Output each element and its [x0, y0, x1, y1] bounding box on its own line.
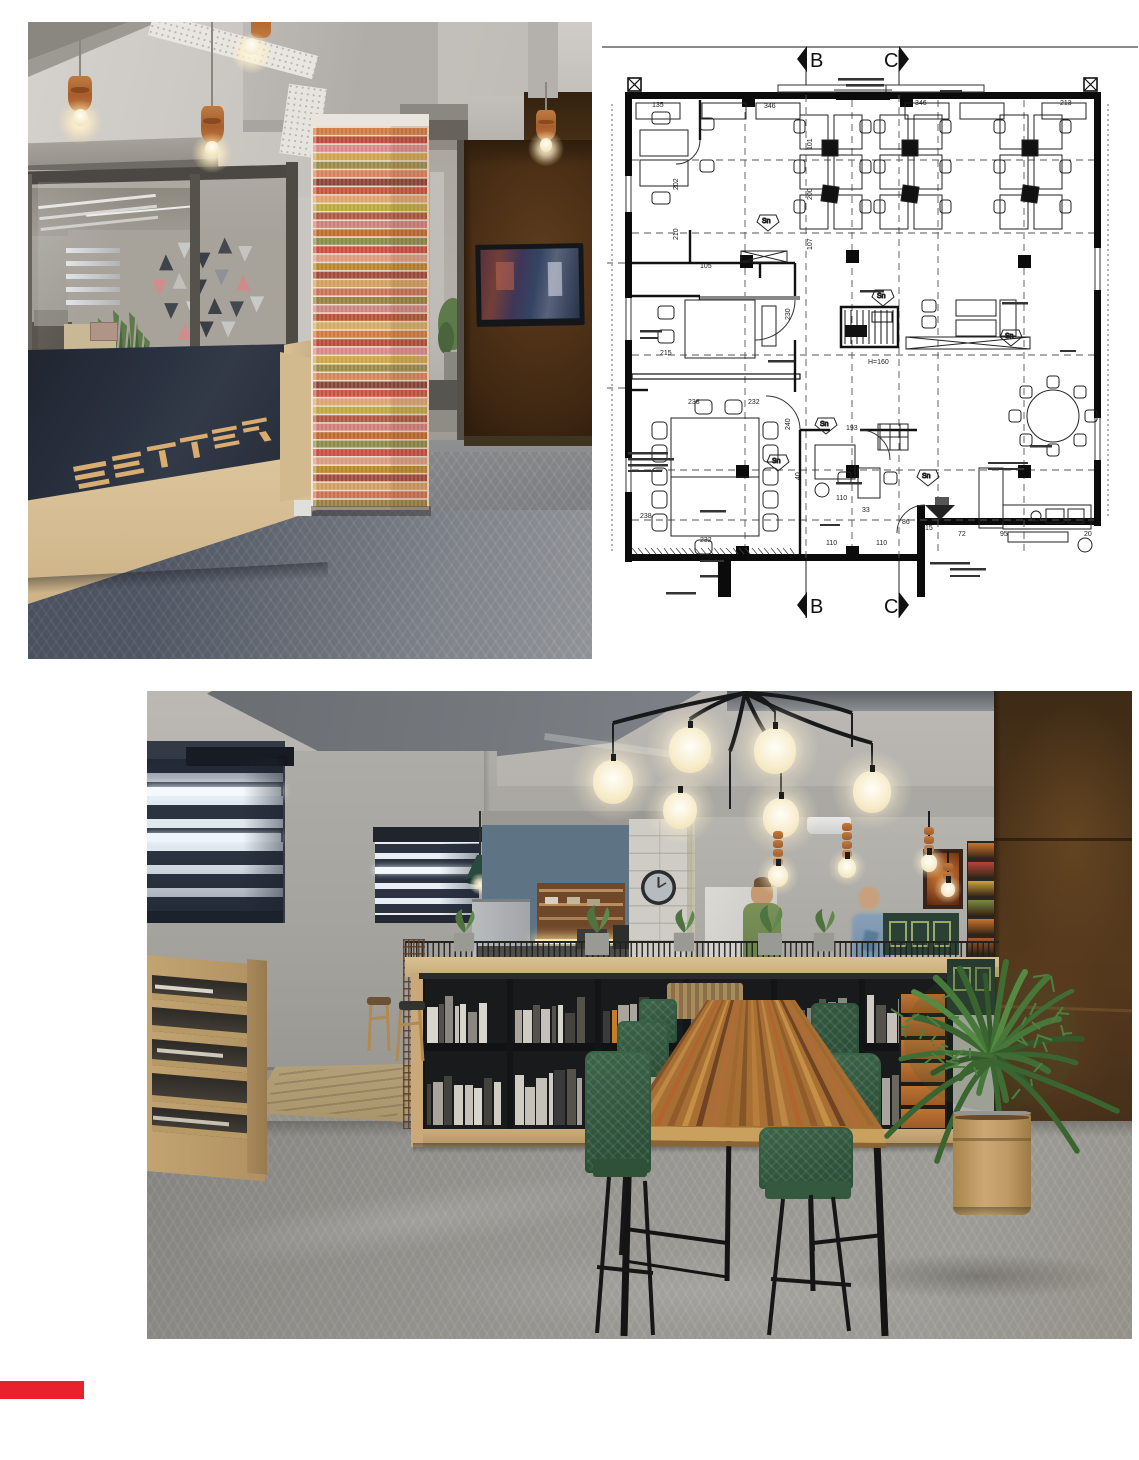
svg-text:C: C: [884, 50, 898, 72]
svg-text:238: 238: [688, 399, 700, 406]
svg-text:346: 346: [764, 103, 776, 110]
svg-text:95: 95: [1000, 531, 1008, 538]
svg-text:33: 33: [862, 507, 870, 514]
svg-text:Sn: Sn: [877, 293, 886, 300]
svg-text:72: 72: [958, 531, 966, 538]
svg-text:H=160: H=160: [868, 359, 889, 366]
svg-text:107: 107: [807, 238, 814, 250]
svg-text:Sn: Sn: [820, 421, 829, 428]
svg-text:210: 210: [673, 228, 680, 240]
svg-text:20: 20: [1084, 531, 1092, 538]
svg-text:135: 135: [652, 102, 664, 109]
svg-text:202: 202: [673, 178, 680, 190]
svg-text:105: 105: [700, 263, 712, 270]
svg-text:15: 15: [925, 525, 933, 532]
svg-text:110: 110: [836, 495, 847, 502]
svg-text:Sn: Sn: [772, 458, 781, 465]
svg-text:230: 230: [785, 308, 792, 320]
svg-text:200: 200: [807, 188, 814, 200]
svg-text:86: 86: [902, 519, 910, 526]
svg-text:C: C: [884, 596, 898, 618]
svg-text:B: B: [810, 596, 823, 618]
svg-text:Sn: Sn: [762, 218, 771, 225]
svg-text:110: 110: [876, 540, 887, 547]
svg-text:346: 346: [915, 100, 927, 107]
svg-text:Sn: Sn: [1005, 333, 1014, 340]
svg-text:215: 215: [660, 350, 672, 357]
svg-text:110: 110: [826, 540, 837, 547]
svg-text:240: 240: [785, 418, 792, 430]
svg-text:232: 232: [700, 537, 712, 544]
svg-text:232: 232: [748, 399, 760, 406]
svg-text:193: 193: [846, 425, 858, 432]
svg-text:B: B: [810, 50, 823, 72]
svg-text:213: 213: [1060, 100, 1072, 107]
svg-text:40: 40: [795, 472, 802, 480]
svg-text:Sn: Sn: [922, 473, 931, 480]
svg-text:101: 101: [807, 138, 814, 150]
svg-text:238: 238: [640, 513, 652, 520]
